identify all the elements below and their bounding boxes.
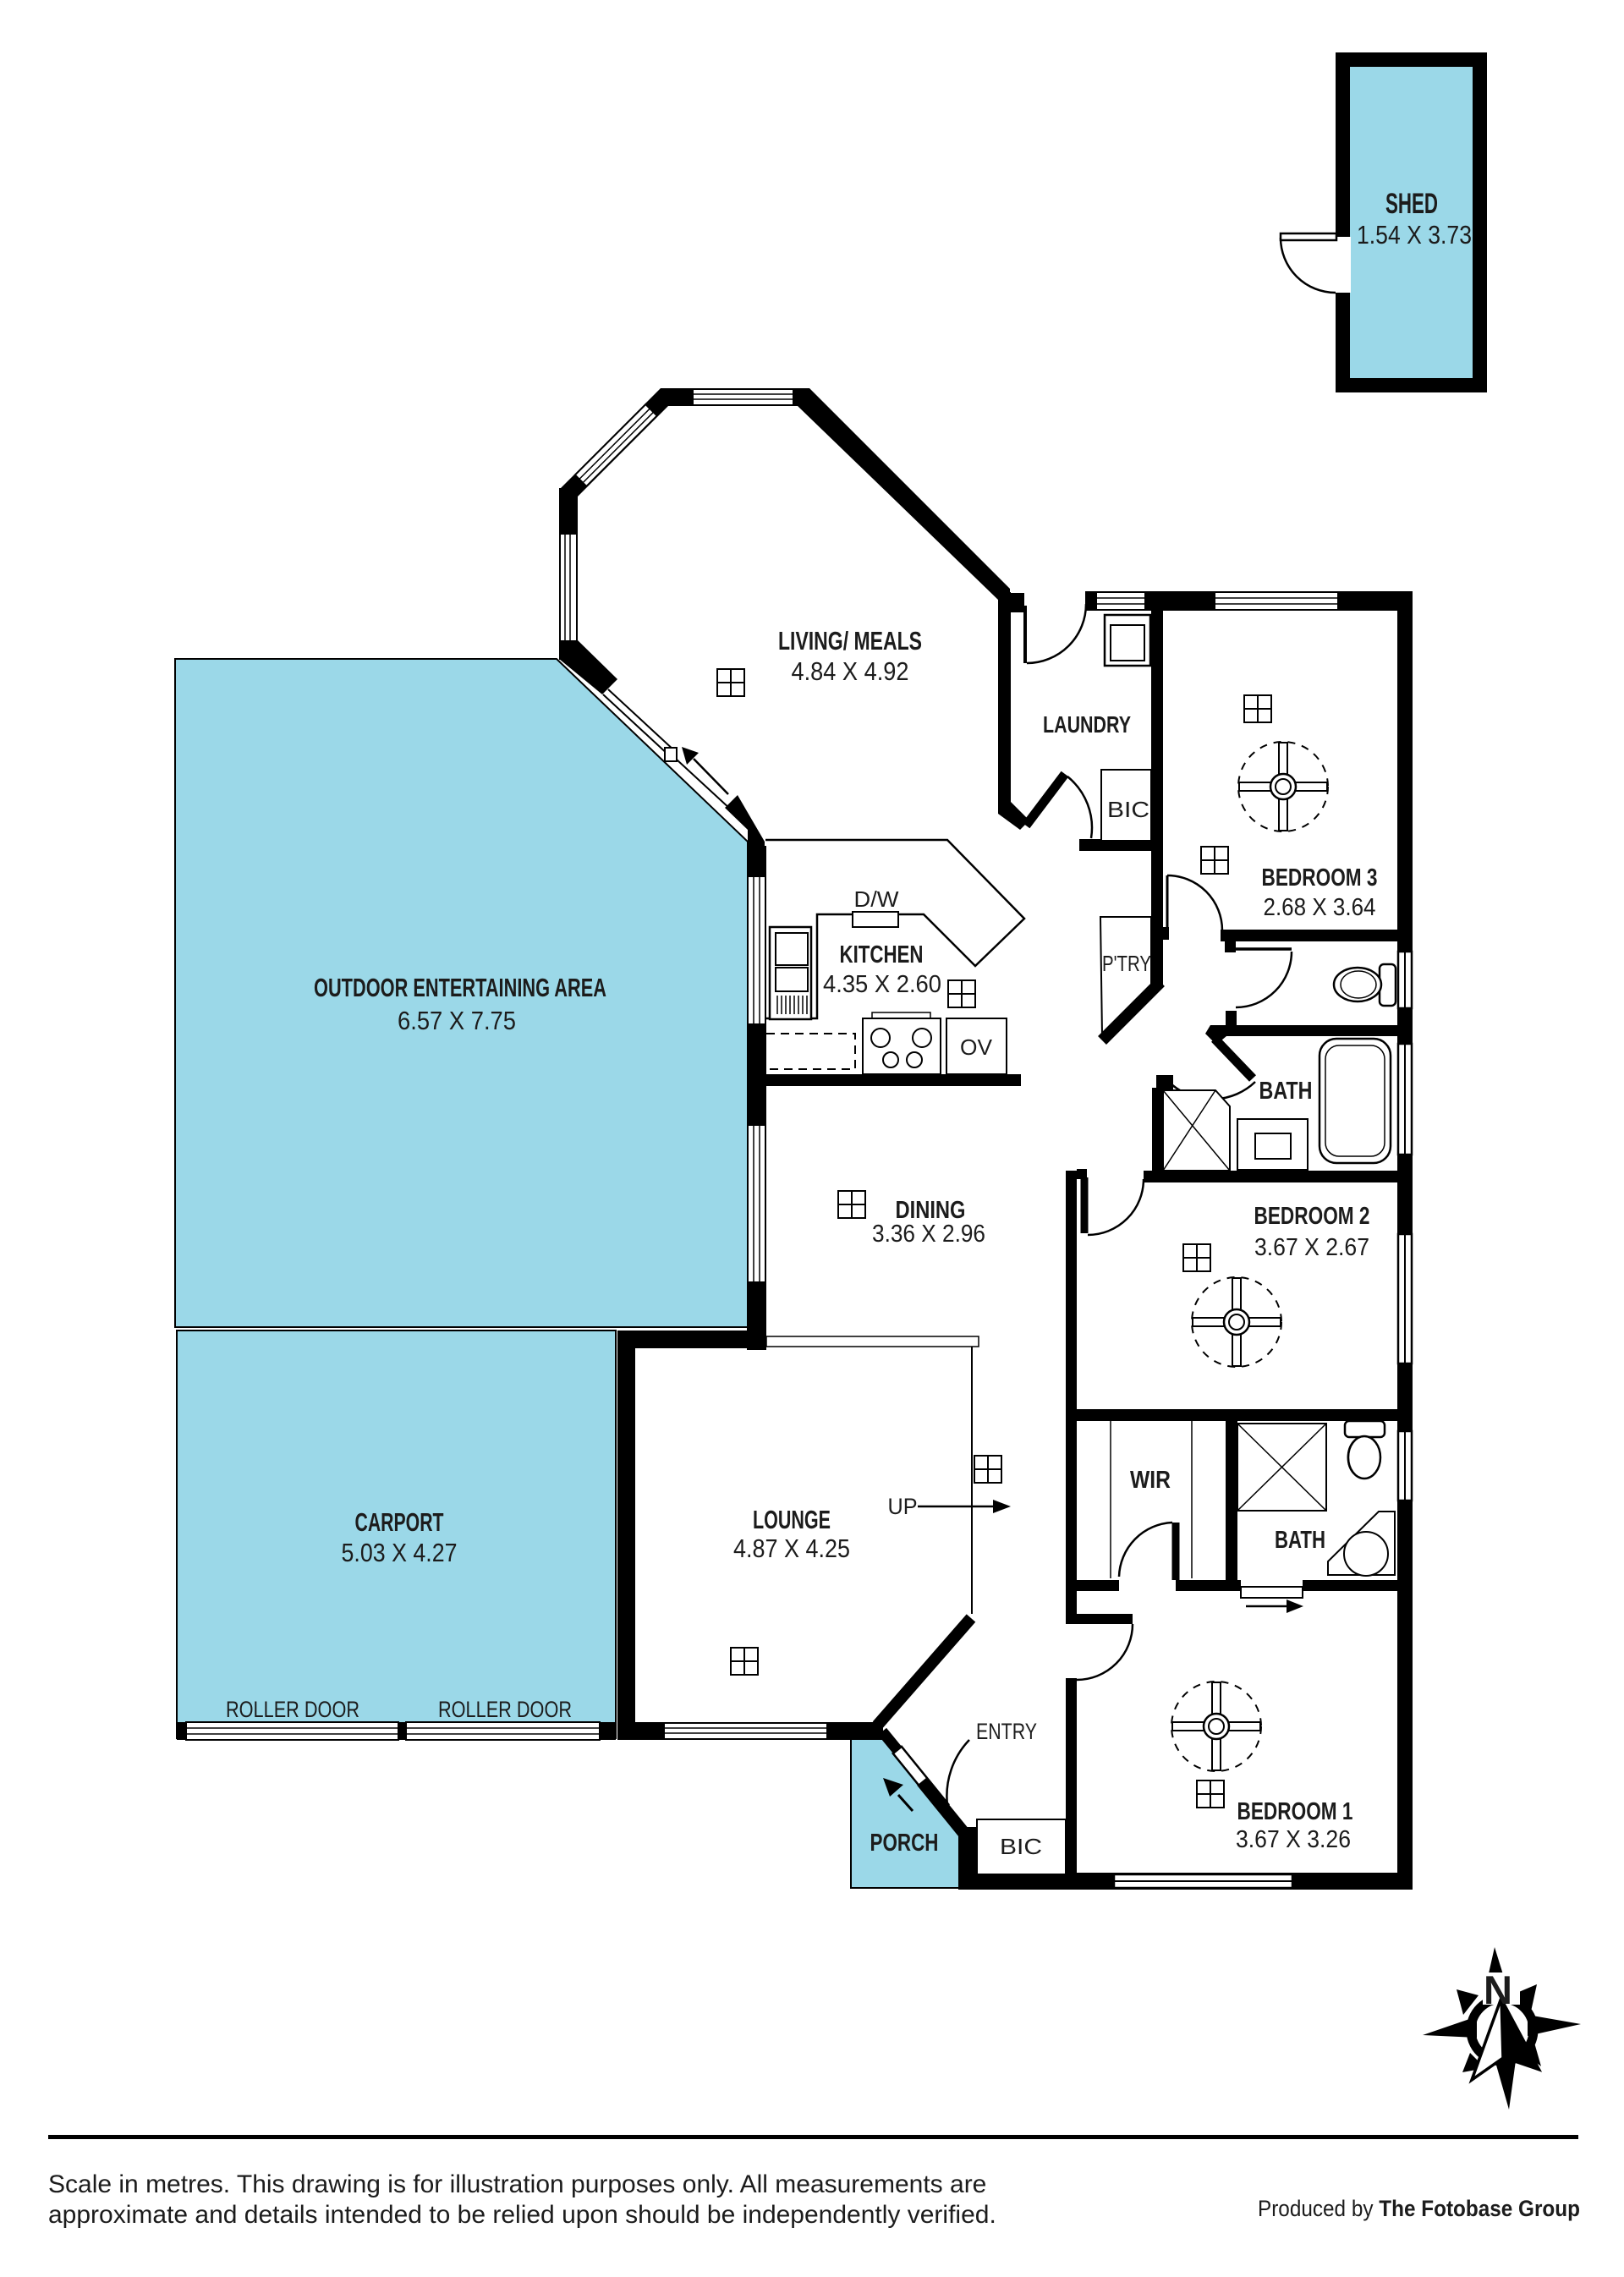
svg-text:D/W: D/W: [854, 886, 899, 912]
svg-text:UP: UP: [888, 1494, 918, 1519]
svg-text:LOUNGE: LOUNGE: [753, 1505, 831, 1534]
svg-text:4.87 X 4.25: 4.87 X 4.25: [733, 1534, 850, 1563]
svg-text:WIR: WIR: [1130, 1467, 1171, 1494]
svg-text:CARPORT: CARPORT: [355, 1507, 444, 1537]
svg-text:2.68 X 3.64: 2.68 X 3.64: [1264, 894, 1376, 921]
svg-text:approximate and details intend: approximate and details intended to be r…: [48, 2201, 996, 2229]
svg-text:Scale in metres. This drawing: Scale in metres. This drawing is for ill…: [48, 2170, 986, 2198]
svg-text:1.54 X 3.73: 1.54 X 3.73: [1357, 220, 1472, 250]
svg-text:3.36 X 2.96: 3.36 X 2.96: [872, 1221, 985, 1248]
svg-text:OV: OV: [960, 1034, 993, 1060]
svg-text:6.57 X 7.75: 6.57 X 7.75: [398, 1006, 516, 1035]
svg-text:P'TRY: P'TRY: [1102, 951, 1151, 976]
svg-text:BATH: BATH: [1275, 1527, 1325, 1554]
svg-text:LAUNDRY: LAUNDRY: [1043, 711, 1131, 738]
svg-text:Produced by The Fotobase Group: Produced by The Fotobase Group: [1258, 2196, 1580, 2221]
svg-text:5.03 X 4.27: 5.03 X 4.27: [342, 1538, 458, 1567]
svg-text:BEDROOM 2: BEDROOM 2: [1254, 1203, 1370, 1230]
svg-text:BIC: BIC: [1000, 1834, 1042, 1859]
svg-text:PORCH: PORCH: [870, 1830, 939, 1857]
svg-text:N: N: [1484, 1967, 1512, 2012]
svg-text:BATH: BATH: [1259, 1078, 1313, 1105]
svg-text:ROLLER DOOR: ROLLER DOOR: [226, 1697, 359, 1722]
svg-text:4.84 X 4.92: 4.84 X 4.92: [792, 656, 909, 686]
svg-text:3.67 X 2.67: 3.67 X 2.67: [1254, 1234, 1369, 1261]
svg-text:KITCHEN: KITCHEN: [840, 941, 924, 968]
svg-text:LIVING/ MEALS: LIVING/ MEALS: [778, 626, 922, 656]
svg-text:4.35 X 2.60: 4.35 X 2.60: [823, 971, 941, 998]
svg-text:OUTDOOR ENTERTAINING AREA: OUTDOOR ENTERTAINING AREA: [314, 973, 606, 1002]
svg-text:3.67 X 3.26: 3.67 X 3.26: [1236, 1826, 1351, 1853]
svg-text:SHED: SHED: [1385, 188, 1438, 220]
svg-text:ENTRY: ENTRY: [976, 1719, 1037, 1744]
svg-text:ROLLER DOOR: ROLLER DOOR: [438, 1697, 572, 1722]
svg-text:BIC: BIC: [1107, 797, 1149, 822]
svg-text:BEDROOM 3: BEDROOM 3: [1262, 864, 1378, 892]
svg-text:BEDROOM 1: BEDROOM 1: [1237, 1798, 1353, 1825]
